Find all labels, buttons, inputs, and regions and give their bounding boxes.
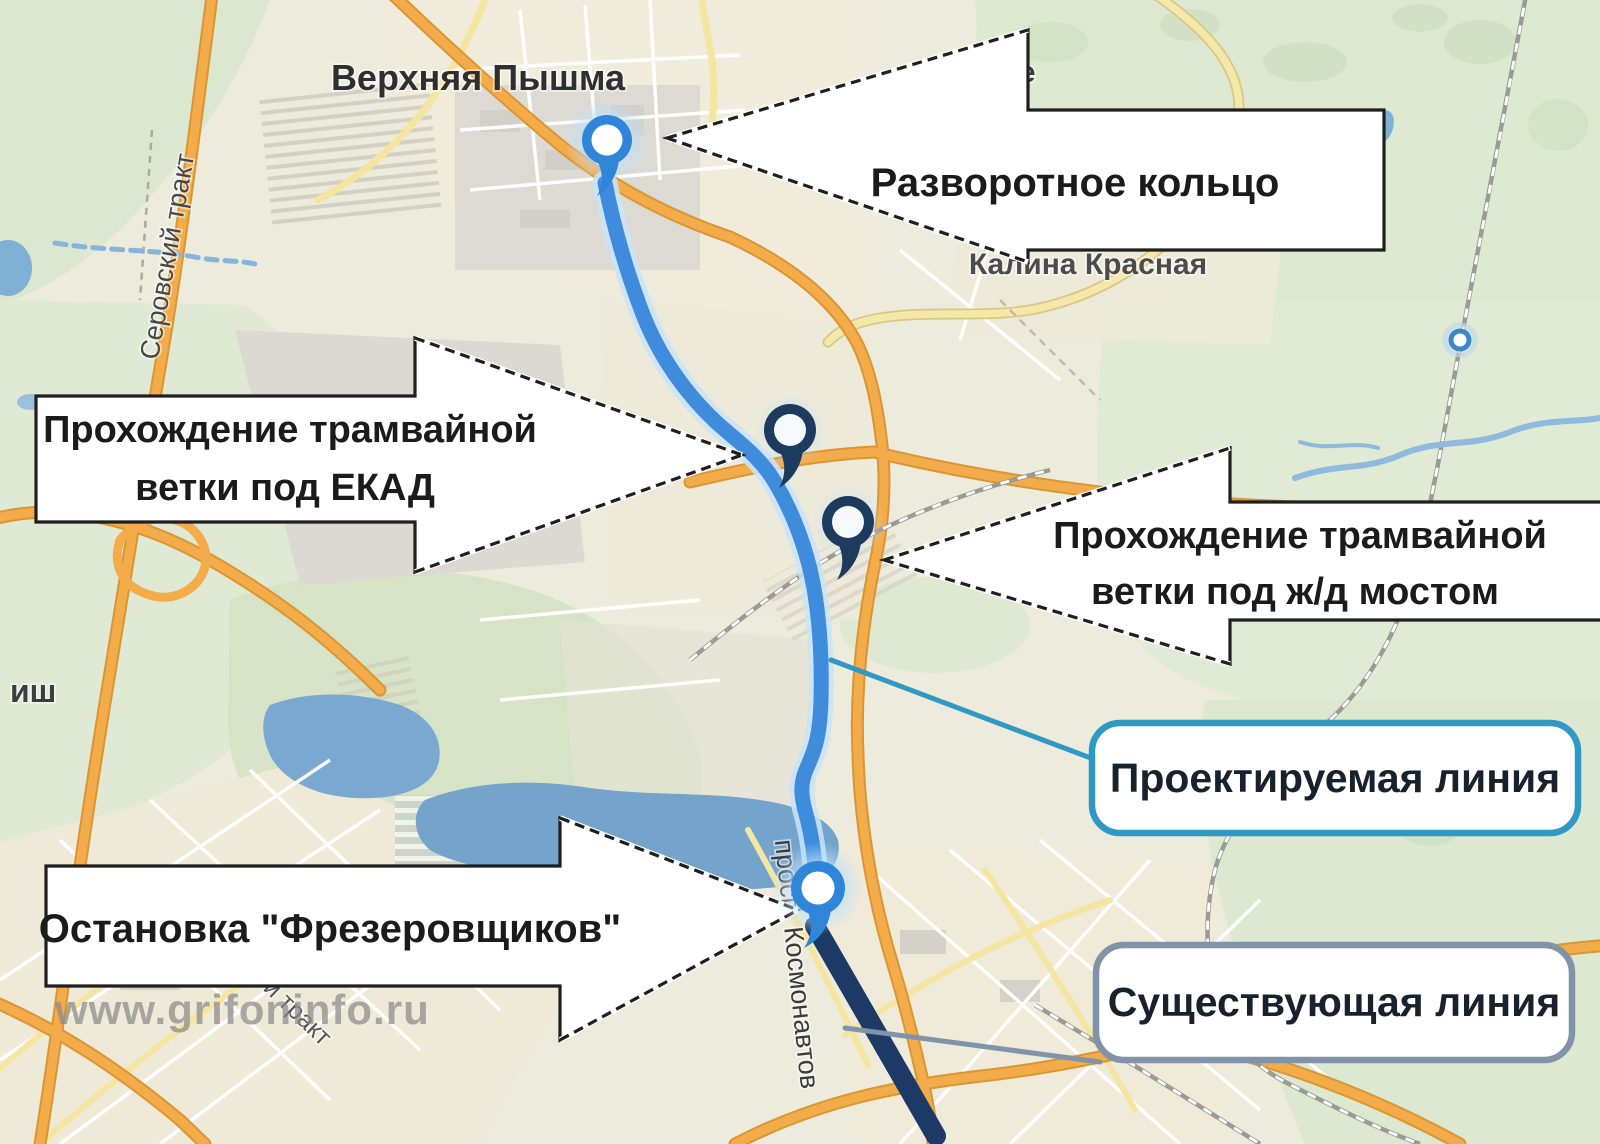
legend-projected-box: Проектируемая линия [1092, 723, 1578, 833]
small-circle-marker [1445, 325, 1475, 355]
callout-under-ekad-line1: Прохождение трамвайной [43, 409, 537, 451]
label-verhnyaya-pyshma: Верхняя Пышма [331, 57, 626, 98]
map-canvas: Верхняя Пышма ье Калина Красная иш Серов… [0, 0, 1600, 1144]
legend-projected-label: Проектируемая линия [1110, 755, 1560, 801]
callout-under-ekad-line2: ветки под ЕКАД [135, 467, 435, 509]
map-screenshot: Верхняя Пышма ье Калина Красная иш Серов… [0, 0, 1600, 1144]
callout-stop-label: Остановка "Фрезеровщиков" [39, 907, 621, 951]
callout-under-rail-line2: ветки под ж/д мостом [1091, 571, 1499, 613]
legend-existing-box: Существующая линия [1096, 945, 1572, 1060]
legend-existing-label: Существующая линия [1108, 979, 1561, 1025]
callout-turning-loop-label: Разворотное кольцо [871, 161, 1280, 205]
label-ish-partial: иш [10, 673, 56, 709]
callout-under-rail-line1: Прохождение трамвайной [1053, 515, 1547, 557]
watermark: www.grifoninfo.ru [54, 986, 430, 1033]
